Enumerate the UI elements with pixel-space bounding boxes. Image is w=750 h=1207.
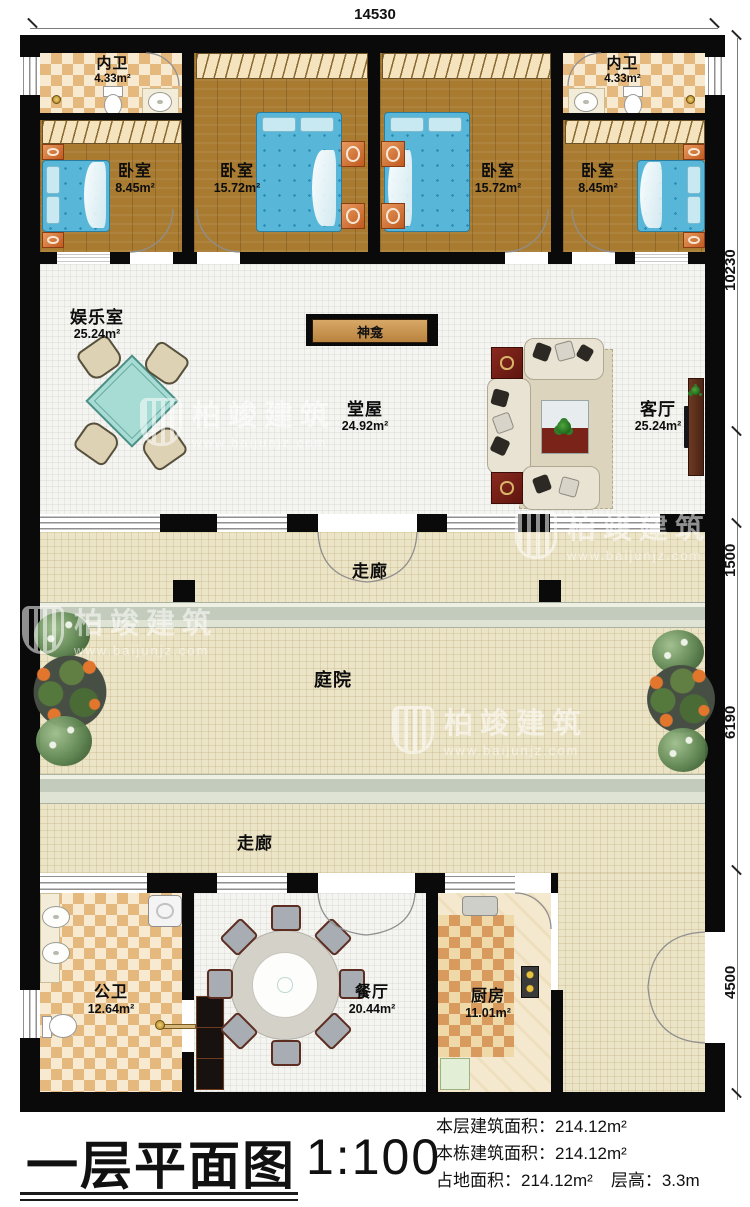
- nightstand: [683, 144, 705, 160]
- nightstand: [381, 141, 405, 167]
- stat-building-area: 本栋建筑面积：214.12m²: [436, 1140, 700, 1167]
- dining-chair: [207, 969, 233, 999]
- door-leaf: [162, 1024, 196, 1029]
- shrine-label: 神龛: [357, 322, 383, 341]
- window: [705, 57, 725, 95]
- cabinet: [196, 1027, 224, 1059]
- wall-segment: [182, 893, 194, 1000]
- room-label-living: 客厅 25.24m²: [608, 400, 708, 433]
- window: [40, 873, 147, 893]
- room-label-hall: 堂屋 24.92m²: [315, 400, 415, 433]
- wall-segment: [415, 873, 445, 893]
- room-label-bedroom-right-large: 卧室 15.72m²: [448, 163, 548, 195]
- page-title: 一层平面图: [26, 1124, 296, 1199]
- window: [550, 514, 660, 532]
- bed-sheet: [312, 150, 336, 226]
- title-underline: [20, 1192, 298, 1201]
- pillow: [428, 117, 462, 132]
- dining-table-top: [252, 952, 318, 1018]
- room-label-bedroom-right-small: 卧室 8.45m²: [548, 163, 648, 195]
- wall-segment: [160, 514, 217, 532]
- pillow: [262, 117, 296, 132]
- sink-icon: [148, 92, 172, 112]
- wall-segment: [615, 252, 635, 264]
- wall-segment: [182, 1052, 194, 1092]
- column: [173, 580, 195, 602]
- walkway-strip: [40, 774, 705, 804]
- wall-segment: [173, 252, 197, 264]
- dimension-tick: [27, 18, 38, 29]
- bush-plant: [658, 728, 708, 772]
- wall-segment: [688, 252, 705, 264]
- corridor-bottom-floor: [40, 802, 705, 873]
- sink-icon: [574, 92, 598, 112]
- cabinet: [196, 996, 224, 1028]
- floor-drain-icon: [52, 95, 61, 104]
- wall-segment: [110, 252, 130, 264]
- wall-segment: [182, 53, 194, 252]
- bush-plant: [36, 716, 92, 766]
- area-stats: 本层建筑面积：214.12m² 本栋建筑面积：214.12m² 占地面积：214…: [436, 1113, 700, 1194]
- pillow: [46, 196, 60, 224]
- kitchen-checker-floor: [438, 915, 514, 1057]
- wall-segment: [563, 113, 705, 120]
- pillow: [390, 117, 424, 132]
- window: [217, 514, 287, 532]
- wall-segment: [426, 893, 438, 1092]
- wall-segment: [551, 873, 558, 893]
- end-table: [491, 347, 523, 379]
- pillow: [46, 166, 60, 194]
- window: [57, 252, 110, 264]
- wall-segment: [287, 514, 318, 532]
- sink-icon: [42, 906, 70, 928]
- dimension-right-label: 4500: [722, 935, 748, 1030]
- window: [217, 873, 287, 893]
- wall-segment: [660, 514, 705, 532]
- dimension-right-label: 6190: [722, 675, 748, 770]
- dimension-top-label: 14530: [325, 6, 425, 23]
- room-label-kitchen: 厨房 11.01m²: [438, 988, 538, 1020]
- room-label-bedroom-left-small: 卧室 8.45m²: [85, 163, 185, 195]
- stat-floor-area: 本层建筑面积：214.12m²: [436, 1113, 700, 1140]
- window: [445, 873, 515, 893]
- room-label-entertainment: 娱乐室 25.24m²: [47, 308, 147, 341]
- nightstand: [42, 144, 64, 160]
- entry-hall-floor: [558, 873, 705, 1092]
- stat-land-area: 占地面积：214.12m²层高：3.3m: [436, 1167, 700, 1194]
- room-label-neiwei-left: 内卫 4.33m²: [60, 56, 165, 86]
- pillow: [687, 196, 701, 224]
- dimension-right-label: 1500: [722, 515, 748, 605]
- end-table: [491, 472, 523, 504]
- dimension-top-line: [30, 28, 718, 29]
- wall-left: [20, 35, 40, 1112]
- nightstand: [683, 232, 705, 248]
- wall-segment: [551, 53, 563, 252]
- wall-segment: [40, 252, 57, 264]
- room-label-bedroom-left-large: 卧室 15.72m²: [187, 163, 287, 195]
- door-knob-icon: [155, 1020, 165, 1030]
- wall-bottom: [20, 1092, 725, 1112]
- dining-chair: [271, 1040, 301, 1066]
- wall-segment: [551, 990, 563, 1092]
- room-label-dining: 餐厅 20.44m²: [322, 984, 422, 1016]
- wall-segment: [240, 252, 505, 264]
- window: [447, 514, 518, 532]
- wardrobe: [196, 53, 368, 79]
- plant-icon: [557, 420, 571, 434]
- drawing-scale: 1:100: [306, 1128, 441, 1186]
- window: [40, 514, 160, 532]
- nightstand: [381, 203, 405, 229]
- courtyard-floor: [40, 626, 705, 774]
- entry-door-opening: [705, 932, 725, 1043]
- sink-icon: [42, 942, 70, 964]
- walkway-strip: [40, 602, 705, 628]
- window: [20, 990, 40, 1038]
- wall-segment: [548, 252, 572, 264]
- dimension-tick: [709, 18, 720, 29]
- pillow: [687, 166, 701, 194]
- plant-icon: [691, 386, 700, 395]
- room-label-courtyard: 庭院: [283, 670, 383, 690]
- nightstand: [42, 232, 64, 248]
- wall-segment: [518, 514, 550, 532]
- window: [635, 252, 688, 264]
- pillow: [300, 117, 334, 132]
- room-label-corridor-top: 走廊: [320, 562, 420, 581]
- wall-segment: [40, 113, 182, 120]
- kitchen-sink-icon: [462, 896, 498, 916]
- floor-plan-page: 14530 10230 1500 6190 4500: [0, 0, 750, 1207]
- dining-chair: [271, 905, 301, 931]
- wall-segment: [147, 873, 217, 893]
- wardrobe: [382, 53, 551, 79]
- cabinet: [196, 1058, 224, 1090]
- washing-machine-icon: [148, 895, 182, 927]
- column: [539, 580, 561, 602]
- shrine: 神龛: [312, 319, 428, 343]
- wall-segment: [368, 53, 380, 252]
- nightstand: [341, 203, 365, 229]
- nightstand: [341, 141, 365, 167]
- room-label-public-bath: 公卫 12.64m²: [61, 984, 161, 1016]
- window: [20, 57, 40, 95]
- wardrobe: [565, 120, 705, 144]
- wall-segment: [287, 873, 318, 893]
- dimension-right-label: 10230: [722, 215, 748, 325]
- wall-segment: [417, 514, 447, 532]
- counter-board: [440, 1058, 470, 1090]
- wardrobe: [42, 120, 182, 144]
- toilet-icon: [49, 1014, 77, 1038]
- floor-drain-icon: [686, 95, 695, 104]
- room-label-neiwei-right: 内卫 4.33m²: [570, 56, 675, 86]
- wall-top: [20, 35, 725, 53]
- room-label-corridor-bottom: 走廊: [205, 834, 305, 853]
